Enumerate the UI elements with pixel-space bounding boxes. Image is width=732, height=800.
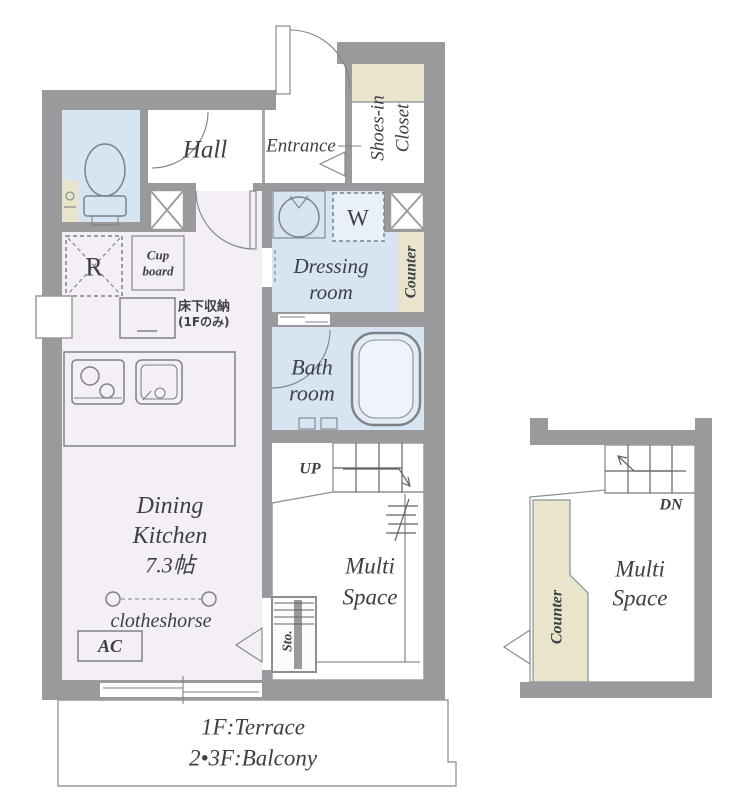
hall-door-opening <box>196 183 253 191</box>
entrance-label: Entrance <box>265 136 336 157</box>
mini-wall-bottom <box>520 682 712 698</box>
floor-plan-drawing: Hall Entrance Shoes-in Closet W R Cup bo… <box>0 0 732 800</box>
terrace-outline <box>58 700 456 786</box>
mini-plan <box>504 418 712 698</box>
bath-room-label-1: Bath <box>291 355 333 380</box>
bath-room-label-2: room <box>289 381 335 406</box>
wall-left <box>42 90 62 700</box>
cupboard-label-1: Cup <box>147 248 170 263</box>
terrace-label-1: 1F:Terrace <box>201 715 305 740</box>
storage-label: Sto. <box>280 630 295 651</box>
wall-dressing-top <box>272 183 424 191</box>
bathtub-inner <box>359 340 413 418</box>
mini-multi-space-label-1: Multi <box>614 557 665 582</box>
multi-space-label-2: Space <box>343 585 398 610</box>
dressing-room-label-2: room <box>309 280 353 304</box>
dining-kitchen-size-label: 7.3帖 <box>145 553 198 578</box>
up-label: UP <box>299 461 321 478</box>
shoes-closet-label-2: Closet <box>393 103 414 152</box>
entrance-step-line <box>262 110 265 183</box>
dining-kitchen-label-2: Kitchen <box>132 523 208 549</box>
dressing-door-opening <box>262 248 272 287</box>
wall-right <box>424 42 445 700</box>
wall-top-right <box>337 42 445 64</box>
wall-bath-bottom <box>262 430 424 443</box>
wall-top-left <box>42 90 276 110</box>
underfloor-label-1: 床下収納 <box>178 299 230 315</box>
storage-door-opening <box>262 598 272 670</box>
hall-label: Hall <box>182 137 228 164</box>
toilet-shelf <box>62 180 78 222</box>
washer-label: W <box>347 206 369 231</box>
ac-label: AC <box>97 636 123 656</box>
dining-kitchen-label-1: Dining <box>136 493 204 519</box>
terrace-label-2: 2•3F:Balcony <box>189 746 318 771</box>
floor-plan-page: Hall Entrance Shoes-in Closet W R Cup bo… <box>0 0 732 800</box>
mini-multi-space-label-2: Space <box>613 586 668 611</box>
wall-toilet-bottom <box>62 222 148 232</box>
refrigerator-label: R <box>85 253 103 282</box>
cupboard-label-2: board <box>142 264 174 279</box>
bath-door-opening <box>278 314 330 325</box>
clotheshorse-label: clotheshorse <box>110 610 211 632</box>
shoes-closet-label-1: Shoes-in <box>368 95 389 160</box>
counter-label: Counter <box>403 245 420 299</box>
entrance-door-leaf <box>276 26 290 94</box>
multi-space-label-1: Multi <box>344 554 395 579</box>
underfloor-label-2: (1Fのみ) <box>178 315 230 329</box>
mini-wall-right <box>695 418 712 698</box>
break-diagonal <box>395 499 409 541</box>
dn-label: DN <box>658 497 684 514</box>
mini-entry-arrow <box>504 630 530 664</box>
wall-pipe-space <box>36 296 72 338</box>
dressing-room-label-1: Dressing <box>292 254 368 278</box>
stair-direction-line <box>343 469 410 486</box>
wall-shoes-closet-left <box>345 64 352 191</box>
mini-wall-stub <box>530 418 548 445</box>
terrace-window-opening <box>100 683 262 697</box>
mini-wall-top <box>548 430 695 445</box>
mini-counter-label: Counter <box>549 589 566 644</box>
